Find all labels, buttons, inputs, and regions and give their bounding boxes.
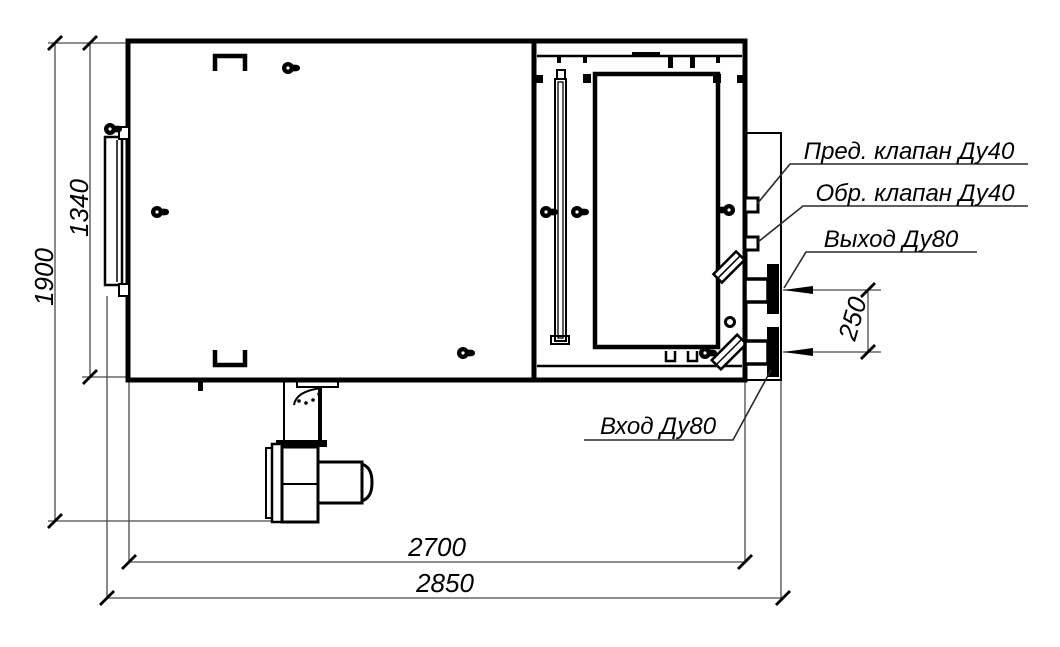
dimension-1340: 1340 <box>64 36 97 384</box>
dim-label-1340: 1340 <box>64 179 94 237</box>
inlet-flange <box>767 327 779 377</box>
dimension-250: 250 <box>783 283 881 359</box>
dimension-1900: 1900 <box>29 36 62 528</box>
check-valve <box>745 237 758 250</box>
dim-label-2850: 2850 <box>415 568 474 598</box>
dim-label-250: 250 <box>832 293 873 344</box>
dim-label-2700: 2700 <box>407 532 466 562</box>
callout-label-safety-valve: Пред. клапан Ду40 <box>804 138 1015 165</box>
callout-label-outlet: Выход Ду80 <box>824 226 959 253</box>
drawing-canvas: 1900 1340 2700 2850 250 Пред. клапан Ду4… <box>0 0 1060 647</box>
outlet-flange <box>767 264 779 314</box>
dim-label-1900: 1900 <box>29 248 59 306</box>
outlet-arrow-icon <box>783 286 813 294</box>
dimension-2700: 2700 <box>122 532 752 569</box>
callout-outlet: Выход Ду80 <box>784 226 977 288</box>
inlet-arrow-icon <box>783 348 813 356</box>
burner-motor <box>318 462 362 503</box>
technical-drawing: 1900 1340 2700 2850 250 Пред. клапан Ду4… <box>0 0 1060 647</box>
burner-assembly <box>266 380 372 522</box>
callout-label-inlet: Вход Ду80 <box>600 413 717 440</box>
dimension-2850: 2850 <box>100 568 790 605</box>
safety-valve <box>745 198 758 212</box>
callout-label-check-valve: Обр. клапан Ду40 <box>815 180 1015 207</box>
door-panel <box>583 74 721 361</box>
left-flange <box>105 127 129 296</box>
